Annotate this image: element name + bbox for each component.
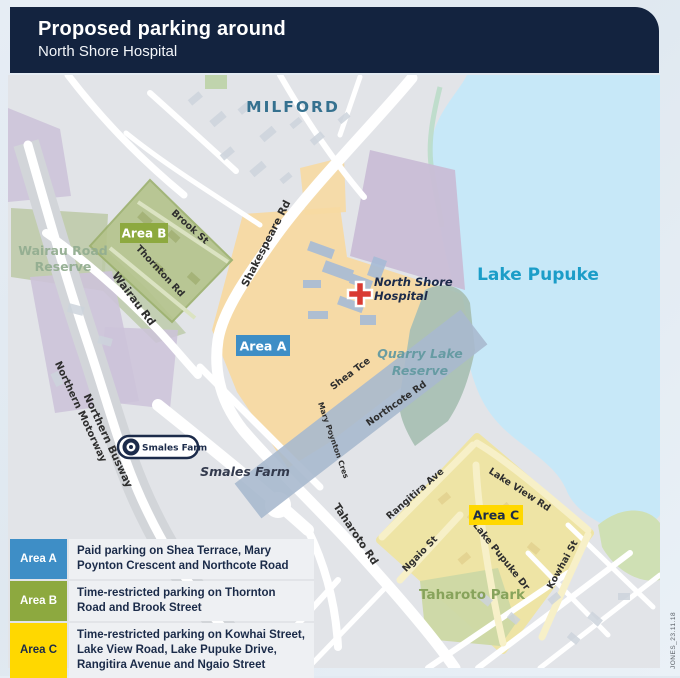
area-a-marker: Area A (236, 335, 290, 356)
legend-badge-area-c: Area C (10, 623, 67, 678)
legend: Area A Paid parking on Shea Terrace, Mar… (10, 539, 314, 678)
legend-badge-area-b: Area B (10, 581, 67, 621)
label-milford: MILFORD (246, 98, 340, 116)
legend-row-area-b: Area B Time-restricted parking on Thornt… (10, 581, 314, 621)
svg-text:Area B: Area B (122, 227, 167, 241)
svg-text:North Shore: North Shore (374, 275, 453, 289)
legend-desc-area-b: Time-restricted parking on Thornton Road… (69, 581, 314, 621)
busway-station-icon (123, 439, 140, 456)
svg-text:Wairau Road: Wairau Road (18, 243, 108, 258)
svg-text:Quarry Lake: Quarry Lake (377, 346, 463, 361)
smales-farm-station-badge: Smales Farm (118, 436, 207, 458)
label-smales-farm-place: Smales Farm (200, 464, 290, 479)
area-c-marker: Area C (469, 505, 523, 525)
legend-desc-area-c: Time-restricted parking on Kowhai Street… (69, 623, 314, 678)
legend-row-area-c: Area C Time-restricted parking on Kowhai… (10, 623, 314, 678)
label-taharoto-park: Taharoto Park (419, 587, 526, 603)
title-bar: Proposed parking around North Shore Hosp… (10, 7, 659, 73)
svg-text:Reserve: Reserve (392, 363, 448, 378)
svg-text:Smales Farm: Smales Farm (142, 444, 207, 454)
svg-text:Area C: Area C (473, 508, 519, 523)
svg-text:Reserve: Reserve (35, 259, 92, 274)
page-subtitle: North Shore Hospital (38, 43, 659, 60)
legend-badge-area-a: Area A (10, 539, 67, 579)
milford-green-patch (205, 75, 227, 89)
page-title: Proposed parking around (38, 18, 659, 41)
label-lake-pupuke: Lake Pupuke (477, 265, 599, 285)
svg-text:Area A: Area A (240, 339, 287, 354)
credit-text: JONES_23.11.18 (670, 597, 677, 669)
legend-desc-area-a: Paid parking on Shea Terrace, Mary Poynt… (69, 539, 314, 579)
legend-row-area-a: Area A Paid parking on Shea Terrace, Mar… (10, 539, 314, 579)
area-b-marker: Area B (120, 223, 168, 243)
svg-text:Hospital: Hospital (374, 289, 429, 303)
